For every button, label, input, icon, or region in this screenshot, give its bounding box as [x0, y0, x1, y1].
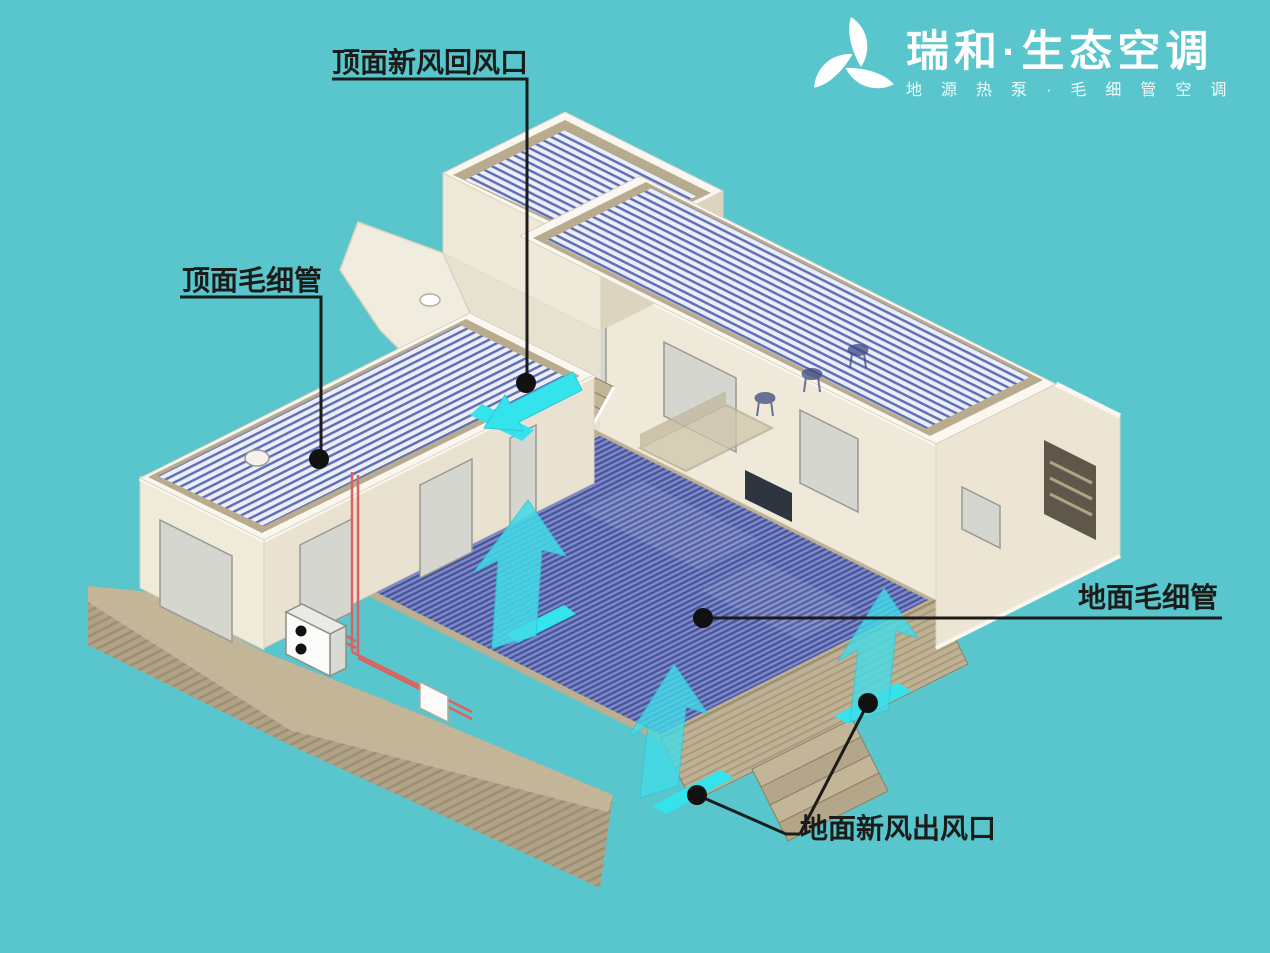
label-floor-fresh-air-outlet: 地面新风出风口	[800, 813, 996, 844]
callout-dot-outlet-right	[858, 693, 878, 713]
label-floor-capillary: 地面毛细管	[1078, 581, 1218, 613]
callout-dot-ceiling-capillary	[309, 449, 329, 469]
label-ceiling-fresh-air-return: 顶面新风回风口	[332, 47, 528, 78]
ceiling-sensor	[245, 450, 269, 466]
callout-dot-ceiling-return	[516, 373, 536, 393]
hvac-isometric-diagram: 顶面新风回风口 顶面毛细管 地面毛细管 地面新风出风口 瑞和·生态空调 地源热泵…	[0, 0, 1270, 953]
label-ceiling-capillary: 顶面毛细管	[182, 264, 322, 296]
logo-title: 瑞和·生态空调	[906, 28, 1213, 76]
bath-fixture	[420, 294, 440, 306]
diagram-page: 顶面新风回风口 顶面毛细管 地面毛细管 地面新风出风口 瑞和·生态空调 地源热泵…	[0, 0, 1270, 953]
fan-port	[296, 644, 307, 655]
fan-port	[296, 626, 307, 637]
callout-dot-outlet-left	[687, 785, 707, 805]
logo-subtitle: 地源热泵·毛细管空调	[906, 81, 1245, 99]
callout-dot-floor-capillary	[693, 608, 713, 628]
